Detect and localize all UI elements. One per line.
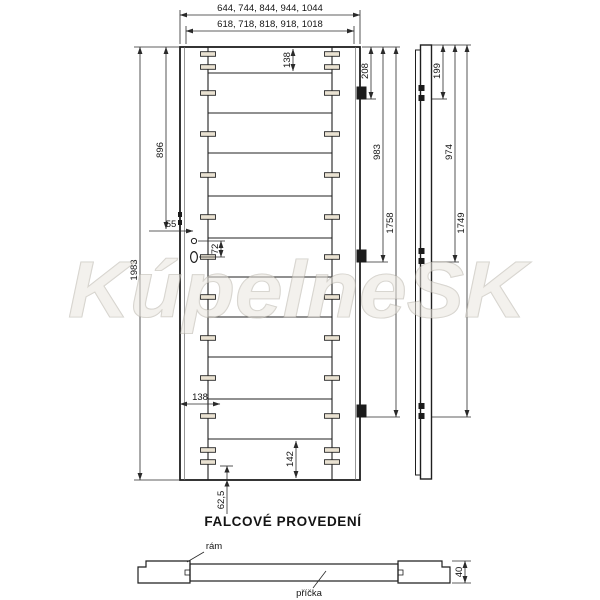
dim-bottom-stile: 138 [192,392,208,403]
joint-notch-right [398,570,403,575]
dim-hinge-top: 208 [360,63,371,79]
dim-top-rail: 138 [282,52,293,68]
drawing-title: FALCOVÉ PROVEDENÍ [204,514,362,529]
dim-bottom-rail: 142 [285,451,296,467]
dim-thickness: 40 [454,567,465,578]
cross-section-labels: rám příčka 40 [187,541,471,599]
watermark: KúpelneSK [68,245,532,334]
dim-hinge-bottom: 1758 [385,212,396,233]
dim-handle-offset: 55 [166,219,177,230]
dim-bottom-dowel: 62,5 [216,491,227,510]
side-dim-hinge-top: 199 [432,63,443,79]
dim-hinge-middle: 983 [372,144,383,160]
side-dimensions: 199 974 1749 [432,45,471,417]
side-dim-hinge-middle: 974 [444,144,455,160]
frame-profile-left [138,561,190,583]
side-dim-hinge-bottom: 1749 [456,212,467,233]
slat-label: příčka [296,588,323,599]
dim-width-overall: 644, 744, 844, 944, 1044 [217,3,323,14]
joint-notch-left [185,570,190,575]
handle-hole-small [191,238,196,243]
dim-handle-height: 896 [155,142,166,158]
cross-section: rám příčka 40 [138,541,471,599]
door-technical-drawing: 644, 744, 844, 944, 1044 618, 718, 818, … [0,0,600,600]
dim-width-inner: 618, 718, 818, 918, 1018 [217,19,323,30]
frame-profile-right [398,561,450,583]
frame-label: rám [206,541,222,552]
slat-profile [190,564,398,581]
